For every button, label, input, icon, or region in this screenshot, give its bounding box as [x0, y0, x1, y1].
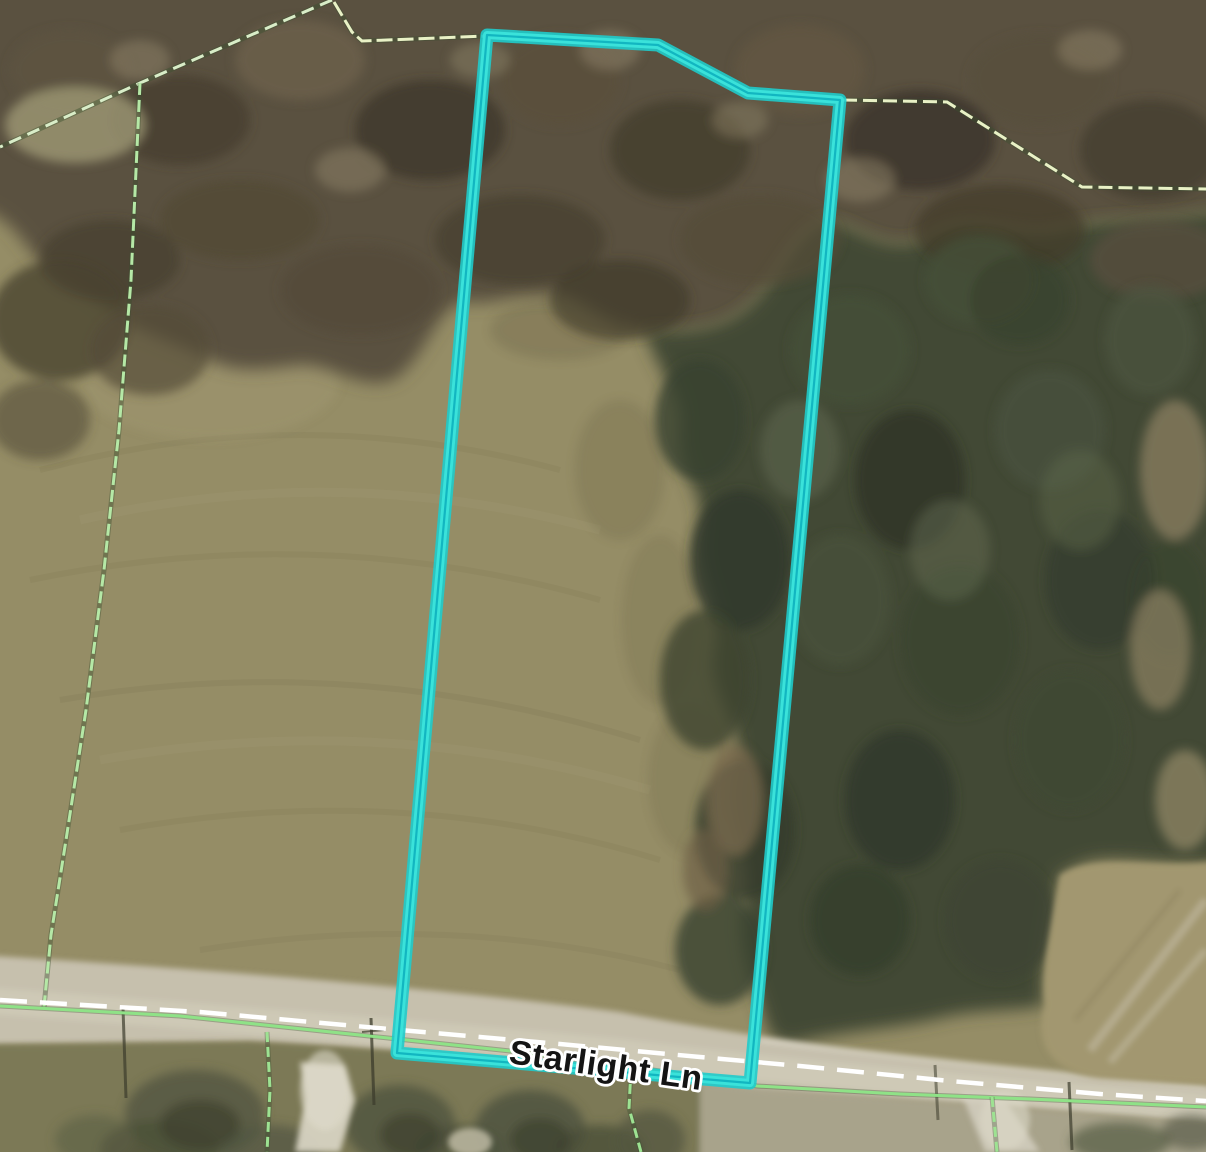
- map-viewport[interactable]: Starlight Ln: [0, 0, 1206, 1152]
- dirt-clearing-southeast: [1041, 860, 1206, 1086]
- boundary-line-south-a: [267, 1032, 270, 1152]
- aerial-imagery: [0, 0, 1206, 1152]
- map-canvas[interactable]: Starlight Ln: [0, 0, 1206, 1152]
